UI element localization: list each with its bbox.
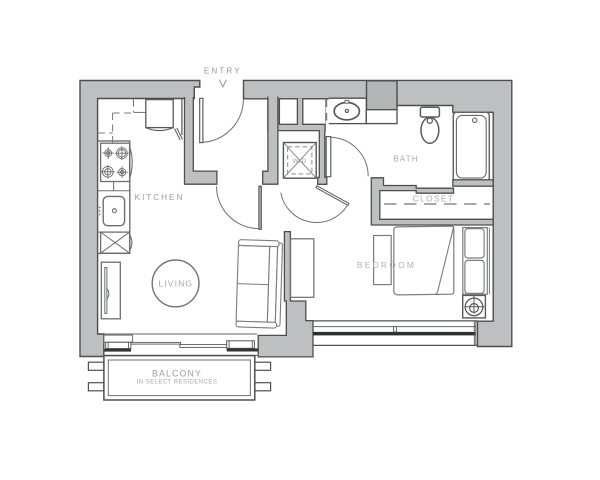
svg-text:ENTRY: ENTRY xyxy=(204,66,242,75)
svg-text:W/D: W/D xyxy=(293,158,307,165)
svg-text:CLOSET: CLOSET xyxy=(413,194,455,204)
svg-text:LIVING: LIVING xyxy=(158,279,193,289)
svg-text:KITCHEN: KITCHEN xyxy=(135,192,185,202)
svg-text:BEDROOM: BEDROOM xyxy=(357,260,416,270)
svg-text:IN SELECT RESIDENCES: IN SELECT RESIDENCES xyxy=(137,380,218,386)
svg-text:BATH: BATH xyxy=(393,153,419,163)
svg-text:BALCONY: BALCONY xyxy=(152,368,202,378)
